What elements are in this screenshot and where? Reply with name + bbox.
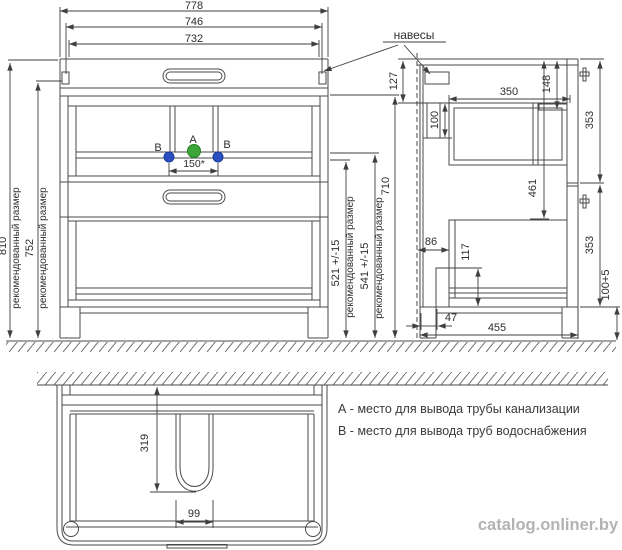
drawer-rail bbox=[539, 104, 567, 110]
bottom-drawer-handle bbox=[163, 190, 225, 204]
water-outlet-point-b-left bbox=[164, 152, 174, 162]
dim-461: 461 bbox=[527, 179, 539, 197]
point-b-label-right: B bbox=[223, 139, 230, 151]
dim-521-note: рекомендованный размер bbox=[345, 196, 356, 318]
hanger-bracket-left bbox=[62, 72, 69, 84]
upper-handle-profile bbox=[580, 72, 589, 76]
sewage-outlet-point-a bbox=[188, 145, 201, 158]
legend: А - место для вывода трубы канализации В… bbox=[338, 402, 587, 438]
side-hanger-bracket bbox=[425, 72, 449, 84]
point-b-label-left: B bbox=[154, 142, 161, 154]
dim-455: 455 bbox=[488, 322, 506, 334]
lower-handle-profile bbox=[580, 199, 589, 203]
siphon-cutout bbox=[176, 414, 213, 491]
dim-353-lower: 353 bbox=[584, 236, 596, 254]
cabinet-drawing: A B B 778 746 732 810 рекомендованный ра… bbox=[0, 0, 622, 550]
point-a-label: A bbox=[189, 134, 197, 146]
dim-319: 319 bbox=[139, 434, 151, 452]
watermark-text: catalog.onliner.by bbox=[478, 516, 619, 534]
dim-86: 86 bbox=[425, 236, 437, 248]
wall-hatch bbox=[37, 372, 608, 385]
top-drawer-handle bbox=[163, 69, 225, 83]
hangers-callout: навесы bbox=[394, 28, 435, 42]
watermark: catalog.onliner.by catalog.onliner.by bbox=[478, 516, 620, 535]
technical-drawing-page: A B B 778 746 732 810 рекомендованный ра… bbox=[0, 0, 622, 550]
foot-right bbox=[306, 522, 321, 537]
ground-hatch bbox=[6, 341, 616, 385]
dim-100-5: 100+5 bbox=[600, 270, 612, 301]
dim-732: 732 bbox=[185, 33, 203, 45]
dim-353-upper: 353 bbox=[584, 111, 596, 129]
dim-541-note: рекомендованный размер bbox=[374, 197, 385, 319]
dim-150: 150* bbox=[183, 158, 205, 170]
dim-127: 127 bbox=[388, 72, 400, 90]
dim-541: 541 +/-15 bbox=[359, 243, 371, 290]
front-view: A B B bbox=[60, 59, 328, 338]
water-outlet-point-b-right bbox=[213, 152, 223, 162]
dim-746: 746 bbox=[185, 16, 203, 28]
hanger-bracket-right bbox=[319, 72, 326, 84]
dim-752-note: рекомендованный размер bbox=[38, 187, 49, 309]
dim-810-note: рекомендованный размер bbox=[11, 187, 22, 309]
dim-521: 521 +/-15 bbox=[330, 240, 342, 287]
upper-drawer-box bbox=[449, 103, 567, 165]
dim-710: 710 bbox=[380, 177, 392, 195]
dim-752: 752 bbox=[24, 239, 36, 257]
dim-117: 117 bbox=[460, 243, 472, 261]
slide-bracket bbox=[436, 268, 449, 307]
dim-810: 810 bbox=[0, 237, 9, 255]
dim-350: 350 bbox=[500, 86, 518, 98]
dim-148: 148 bbox=[541, 75, 553, 93]
dim-47: 47 bbox=[445, 312, 457, 324]
dim-100: 100 bbox=[429, 111, 441, 129]
legend-line-b: В - место для вывода труб водоснабжения bbox=[338, 424, 587, 438]
foot-left bbox=[64, 522, 79, 537]
bottom-view: 319 99 bbox=[57, 385, 327, 548]
dim-778: 778 bbox=[185, 0, 203, 12]
legend-line-a: А - место для вывода трубы канализации bbox=[338, 402, 580, 416]
dim-99: 99 bbox=[188, 508, 200, 520]
